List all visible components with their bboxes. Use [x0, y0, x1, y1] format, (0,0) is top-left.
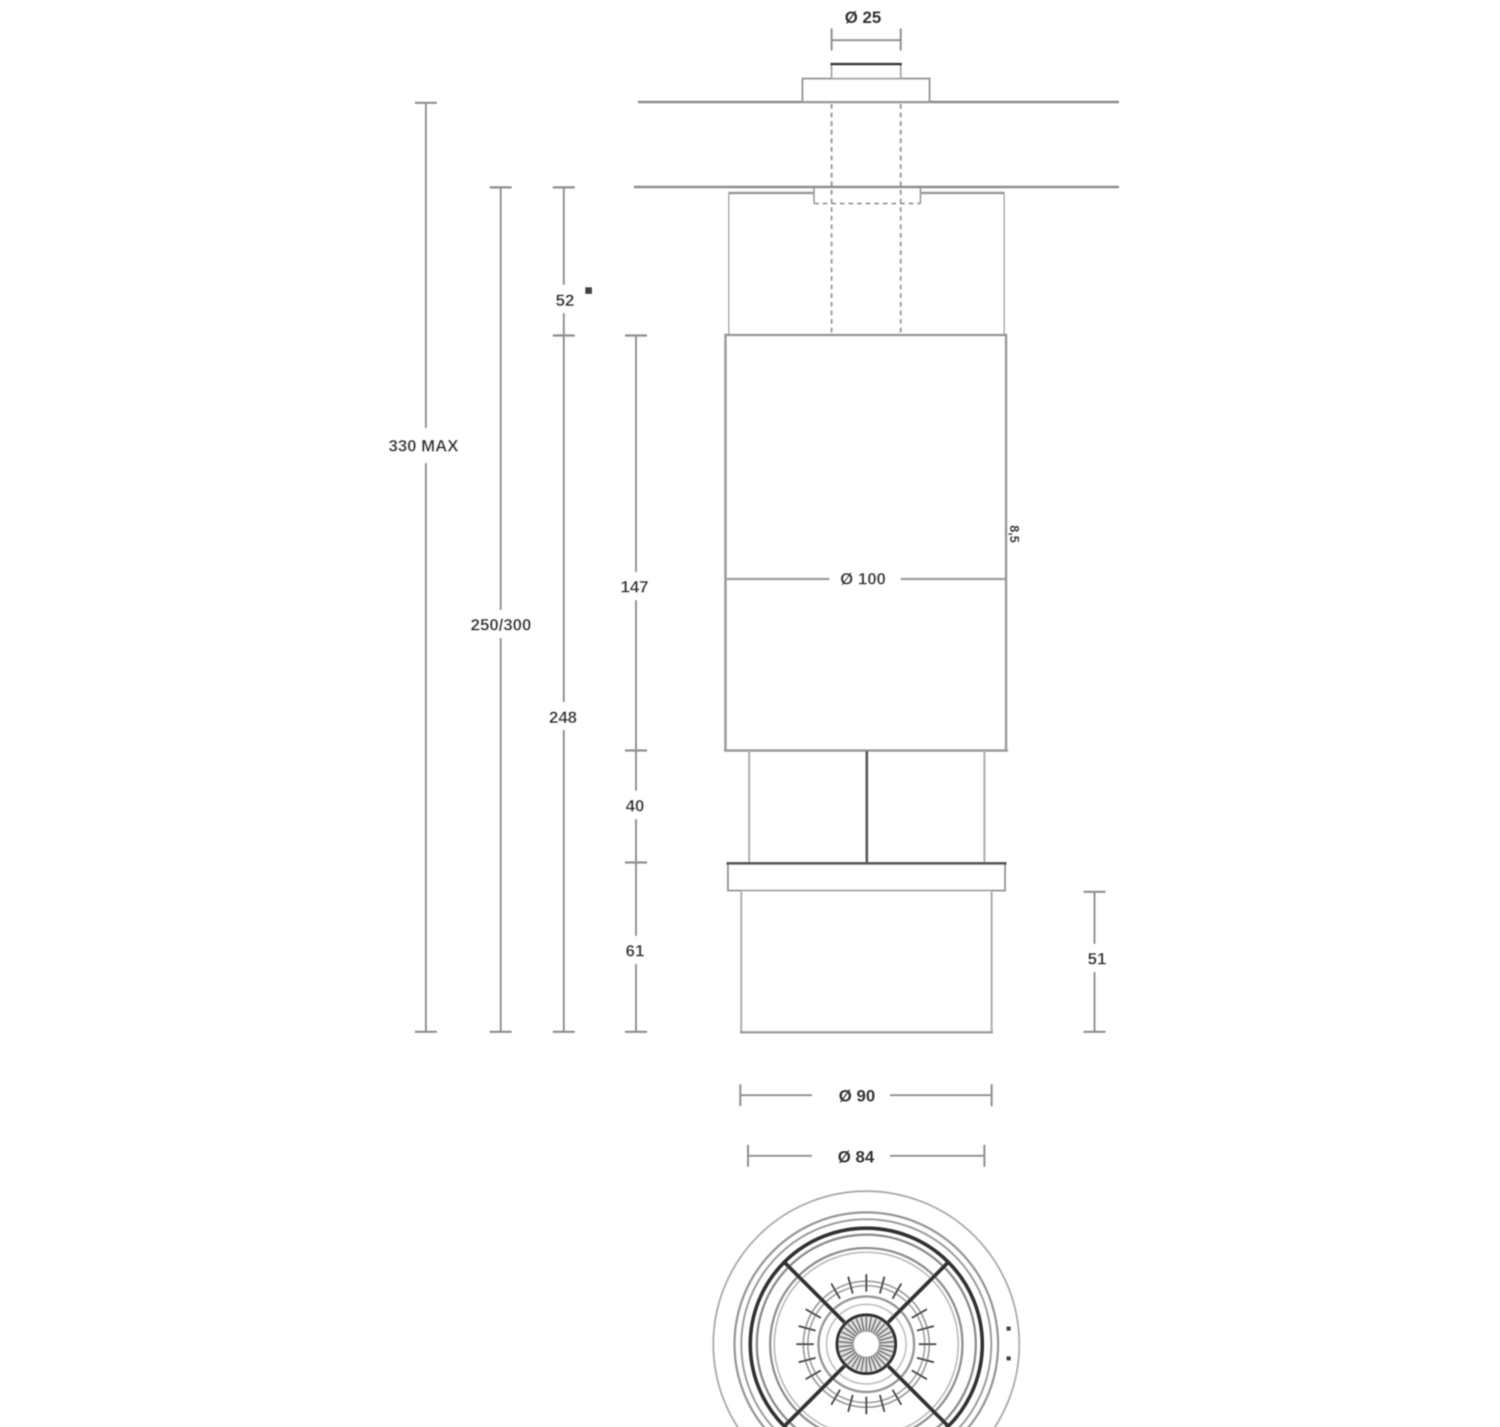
svg-text:51: 51: [1088, 950, 1107, 969]
svg-text:330 MAX: 330 MAX: [389, 437, 460, 456]
svg-text:8,5: 8,5: [1007, 525, 1021, 542]
svg-text:Ø 90: Ø 90: [839, 1087, 875, 1106]
svg-text:Ø 84: Ø 84: [838, 1148, 875, 1167]
svg-text:250/300: 250/300: [471, 616, 532, 635]
svg-text:52: 52: [556, 291, 575, 310]
svg-text:147: 147: [621, 578, 649, 597]
svg-text:40: 40: [626, 797, 645, 816]
svg-text:248: 248: [549, 708, 577, 727]
svg-text:61: 61: [626, 942, 645, 961]
svg-text:Ø 25: Ø 25: [845, 8, 881, 27]
svg-text:Ø 100: Ø 100: [840, 570, 886, 589]
